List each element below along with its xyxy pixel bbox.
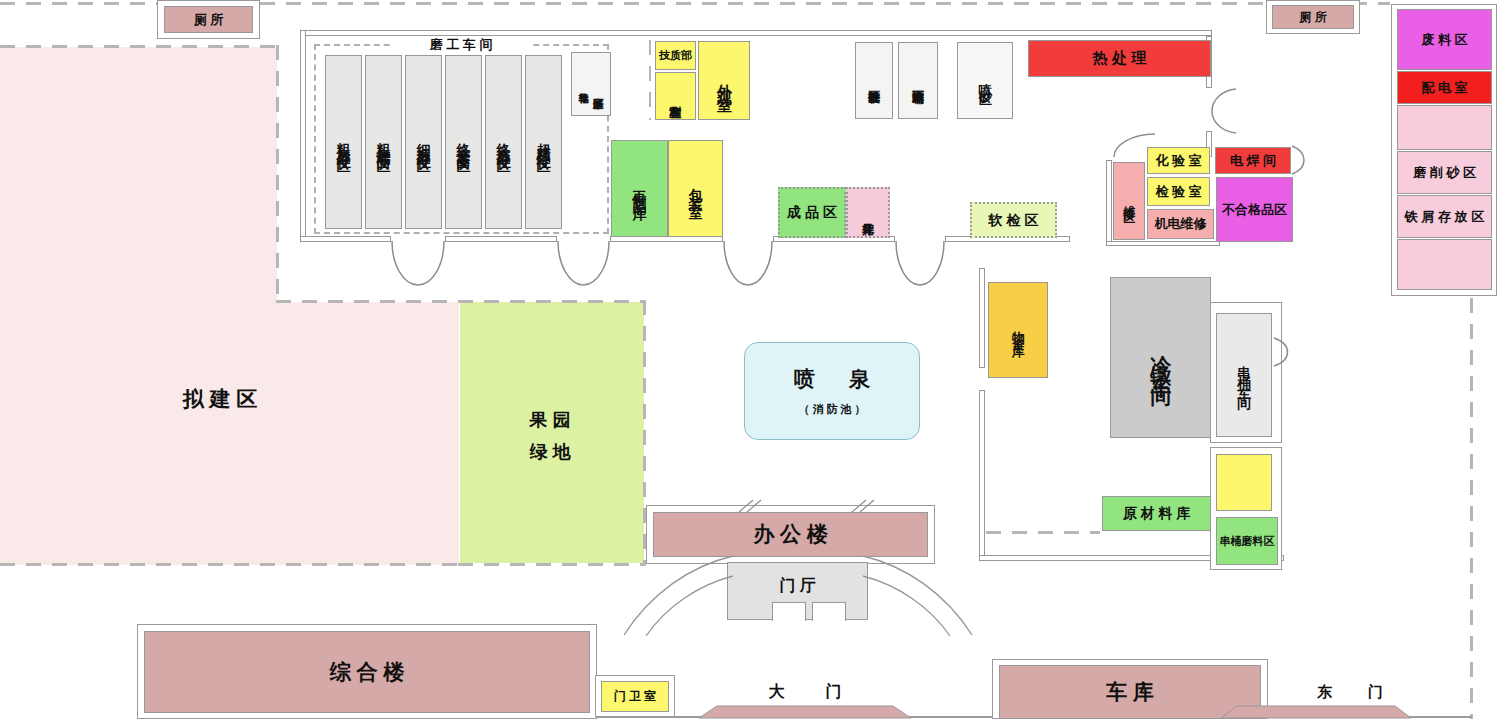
orchard-label: 果 园 绿 地 bbox=[495, 408, 605, 464]
sandblast-area: 喷砂区 bbox=[957, 42, 1013, 119]
materials-store: 物资库 bbox=[988, 282, 1048, 378]
proposed-area-dash-right bbox=[276, 45, 279, 303]
iron-chip-storage-area: 铁 屑 存 放 区 bbox=[1397, 195, 1492, 238]
complex-building: 综 合 楼 bbox=[144, 631, 590, 713]
tech-dept-room: 技质部 bbox=[655, 41, 696, 70]
cold-heading-shop: 冷镦车间 bbox=[1110, 277, 1211, 438]
tech-zone-dash bbox=[649, 40, 651, 120]
heat-treatment-area: 热 处 理 bbox=[1028, 40, 1211, 77]
lobby-label: 门 厅 bbox=[727, 576, 868, 597]
unlabeled-yellow-store bbox=[1216, 454, 1272, 511]
lobby-notch-left bbox=[772, 602, 806, 621]
proposed-area-dash-bottom bbox=[0, 563, 460, 566]
office-break-mark-left bbox=[737, 498, 763, 514]
proposed-area-upper bbox=[0, 47, 277, 303]
door-arc-2 bbox=[557, 241, 610, 287]
tumbling-shop: 串桶车间 bbox=[1216, 313, 1272, 437]
packing-room: 包装室 bbox=[668, 140, 723, 237]
guard-room: 门 卫 室 bbox=[601, 681, 669, 712]
inspection-room: 检 验 室 bbox=[1147, 177, 1210, 206]
waste-area: 废 料 区 bbox=[1397, 9, 1492, 70]
mech-elec-maintenance: 机电维修 bbox=[1147, 209, 1214, 239]
power-room: 配 电 室 bbox=[1397, 71, 1492, 104]
remanufactured-store: 再制品库 bbox=[611, 140, 668, 237]
east-wall-v2 bbox=[979, 390, 985, 558]
east-gate-label: 东 门 bbox=[1285, 683, 1415, 702]
toilet-ne: 厕 所 bbox=[1272, 5, 1354, 29]
strip-superfinish-od: 超精外径区 bbox=[525, 55, 562, 229]
east-column-blank-1 bbox=[1397, 105, 1492, 150]
strip-final-grind-base: 终磨基面区 bbox=[445, 55, 482, 229]
proposed-area-lower bbox=[0, 302, 459, 565]
lab-room: 化 验 室 bbox=[1147, 147, 1210, 174]
factory-site-plan: 拟 建 区 果 园 绿 地 厕 所 厕 所 磨 工 bbox=[0, 0, 1500, 719]
qc-wall-bottom bbox=[1106, 241, 1220, 246]
proposed-area-label: 拟 建 区 bbox=[120, 385, 320, 413]
finished-goods-area: 成 品 区 bbox=[778, 187, 846, 238]
office-break-mark-right bbox=[850, 498, 876, 514]
qc-wall-left bbox=[1106, 160, 1112, 244]
east-dash-inner bbox=[986, 531, 1100, 534]
lobby-arc-left bbox=[618, 552, 736, 637]
raw-materials-store: 原 材 料 库 bbox=[1102, 496, 1211, 531]
orchard-dash-top bbox=[458, 300, 645, 303]
lobby-arc-right bbox=[860, 552, 978, 637]
soft-grind-od-area: 软磨外径区 bbox=[855, 42, 893, 119]
east-column-blank-2 bbox=[1397, 239, 1492, 290]
strip-final-grind-od: 终磨外径区 bbox=[485, 55, 522, 229]
main-gate-bar bbox=[698, 705, 912, 719]
fountain: 喷 泉 （ 消 防 池 ） bbox=[744, 342, 920, 440]
testing-room: 检测室 bbox=[655, 72, 696, 120]
welding-room: 电 焊 间 bbox=[1215, 147, 1291, 174]
office-building: 办 公 楼 bbox=[653, 512, 928, 557]
orchard-label-line1: 果 园 bbox=[495, 408, 605, 432]
soft-inspection-area: 软 检 区 bbox=[970, 202, 1057, 238]
strip-fine-grind-od: 细磨外径区 bbox=[405, 55, 442, 229]
soft-grind-face-area: 软磨端面区 bbox=[898, 42, 938, 119]
nonconforming-area: 不合格品区 bbox=[1216, 177, 1293, 242]
door-arc-1 bbox=[391, 241, 445, 287]
workshop-wall-bottom-2 bbox=[445, 236, 557, 242]
appearance-room: 外观室 bbox=[698, 41, 750, 120]
door-arc-4 bbox=[895, 241, 945, 287]
welding-door-arc bbox=[1290, 144, 1314, 176]
strip-rough-grind-face: 粗磨端面区 bbox=[365, 55, 402, 229]
tumbling-door-arc bbox=[1272, 336, 1298, 368]
grinding-hall-title: 磨 工 车 间 bbox=[392, 36, 530, 53]
east-gate-bar bbox=[1220, 705, 1412, 719]
east-wall-v1 bbox=[979, 268, 985, 368]
fountain-subtitle: （ 消 防 池 ） bbox=[798, 402, 865, 417]
workshop-wall-left bbox=[300, 30, 306, 242]
door-arc-3 bbox=[723, 241, 773, 287]
east-boundary-dash bbox=[1470, 298, 1473, 719]
regrind-area: 导轮导辊 修磨区 bbox=[571, 52, 611, 116]
fountain-title: 喷 泉 bbox=[780, 365, 884, 393]
proposed-area-dash-top bbox=[0, 45, 278, 48]
door-arc-heat-east bbox=[1208, 88, 1238, 134]
guide-wheel-store: 导轮库 bbox=[846, 187, 890, 238]
lobby-notch-right bbox=[812, 602, 846, 621]
toilet-nw: 厕 所 bbox=[164, 6, 253, 33]
tumbling-abrasive-area: 串桶磨料区 bbox=[1216, 517, 1278, 565]
strip-rough-grind-od: 粗磨外径区 bbox=[325, 55, 362, 229]
grinding-sand-area: 磨 削 砂 区 bbox=[1397, 151, 1492, 194]
workshop-wall-bottom-1 bbox=[300, 236, 391, 242]
main-gate-label: 大 门 bbox=[740, 682, 870, 703]
maintenance-area: 维修区 bbox=[1113, 162, 1145, 240]
proposed-area-dash-step bbox=[276, 300, 460, 303]
orchard-label-line2: 绿 地 bbox=[495, 440, 605, 464]
